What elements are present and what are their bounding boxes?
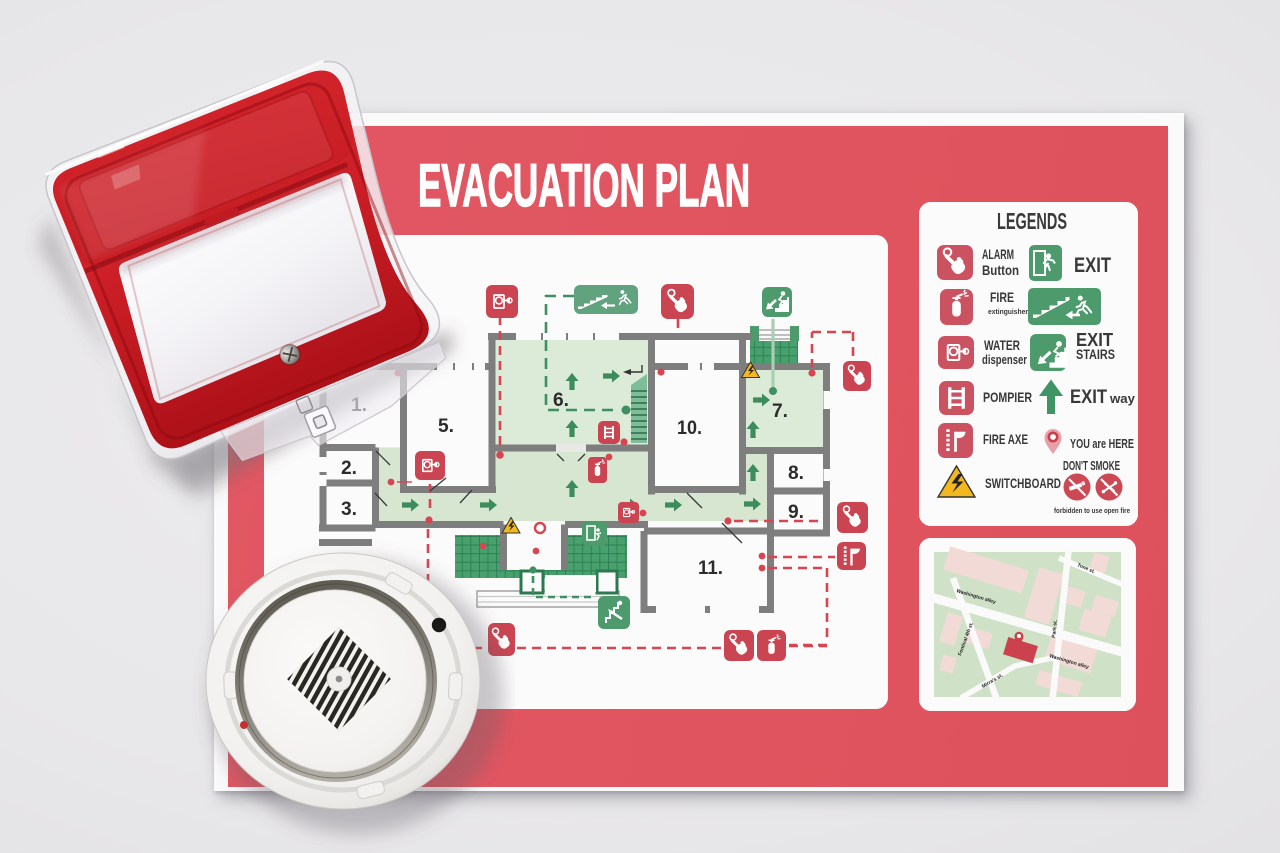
svg-text:SWITCHBOARD: SWITCHBOARD <box>985 475 1061 491</box>
svg-text:dispenser: dispenser <box>982 353 1027 367</box>
svg-text:way: way <box>1109 391 1136 406</box>
svg-text:STAIRS: STAIRS <box>1076 347 1115 362</box>
svg-text:6.: 6. <box>553 390 569 411</box>
svg-text:FIRE: FIRE <box>990 289 1014 305</box>
svg-text:WATER: WATER <box>984 337 1020 353</box>
svg-text:ALARM: ALARM <box>982 246 1014 262</box>
svg-text:YOU are HERE: YOU are HERE <box>1070 437 1134 451</box>
svg-text:9.: 9. <box>788 502 804 523</box>
svg-text:LEGENDS: LEGENDS <box>997 208 1067 234</box>
svg-text:EXIT: EXIT <box>1074 254 1111 277</box>
svg-text:EXIT: EXIT <box>1070 387 1107 408</box>
svg-text:DON'T SMOKE: DON'T SMOKE <box>1063 459 1120 473</box>
svg-text:extinguisher: extinguisher <box>988 307 1028 316</box>
svg-text:Button: Button <box>982 262 1019 278</box>
svg-text:10.: 10. <box>677 418 702 439</box>
svg-text:FIRE AXE: FIRE AXE <box>983 431 1028 447</box>
svg-text:forbidden to use open fire: forbidden to use open fire <box>1054 506 1130 515</box>
svg-text:11.: 11. <box>698 558 723 579</box>
svg-text:7.: 7. <box>772 401 788 422</box>
svg-text:8.: 8. <box>788 463 804 484</box>
svg-text:POMPIER: POMPIER <box>983 389 1032 405</box>
